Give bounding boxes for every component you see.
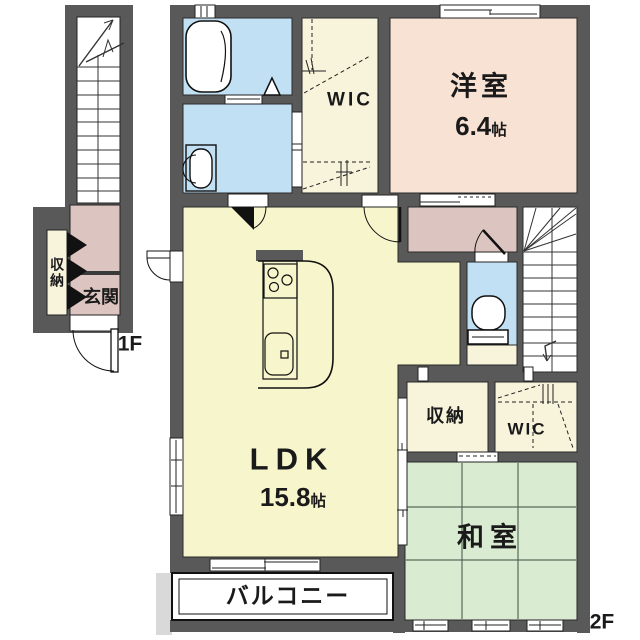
wic-top-door-icon	[292, 112, 302, 187]
tatami-sliding-partition-icon	[397, 398, 408, 545]
western-room-label: 洋室	[450, 74, 512, 101]
western-window-icon	[440, 5, 540, 18]
western-room-size: 6.4帖	[455, 113, 507, 139]
wic-right-label: WIC	[507, 421, 546, 438]
western-room-floor	[390, 18, 577, 193]
western-sliding-door-icon	[420, 194, 495, 206]
ldk-size-unit: 帖	[311, 493, 327, 510]
balcony-label: バルコニー	[226, 585, 351, 608]
tatami-low-windows-icon	[413, 620, 563, 631]
bathtub-icon	[186, 21, 231, 92]
hallway-floor	[408, 207, 517, 252]
wic-top-label: WIC	[327, 91, 373, 110]
bath-window-icon	[195, 5, 215, 18]
floor-plan: 収納 玄関 1F WIC 洋室 6.4帖 LDK 15.8帖 収納 WIC 和室…	[0, 0, 640, 640]
entrance-label: 玄関	[83, 288, 119, 306]
floor-1f-label: 1F	[118, 334, 143, 355]
western-room-size-unit: 帖	[491, 122, 507, 139]
balcony-window-icon	[210, 559, 320, 571]
western-room-size-value: 6.4	[455, 111, 491, 141]
storage-sliding-door-icon	[457, 452, 498, 462]
ldk-label: LDK	[250, 444, 335, 475]
wic-right-floor	[495, 382, 577, 452]
stairs-2f-floor	[523, 207, 577, 372]
floor-2f-label: 2F	[590, 612, 615, 633]
ldk-west-window-icon	[170, 438, 183, 515]
toilet-icon	[468, 296, 508, 344]
storage-1f-label: 収納	[50, 257, 64, 289]
japanese-room-label: 和室	[457, 525, 523, 552]
storage-2f-label: 収納	[426, 407, 466, 425]
ldk-size: 15.8帖	[260, 484, 326, 510]
floor-plan-drawing	[0, 0, 640, 640]
balcony-side-slab	[156, 573, 172, 635]
ldk-size-value: 15.8	[260, 482, 311, 512]
